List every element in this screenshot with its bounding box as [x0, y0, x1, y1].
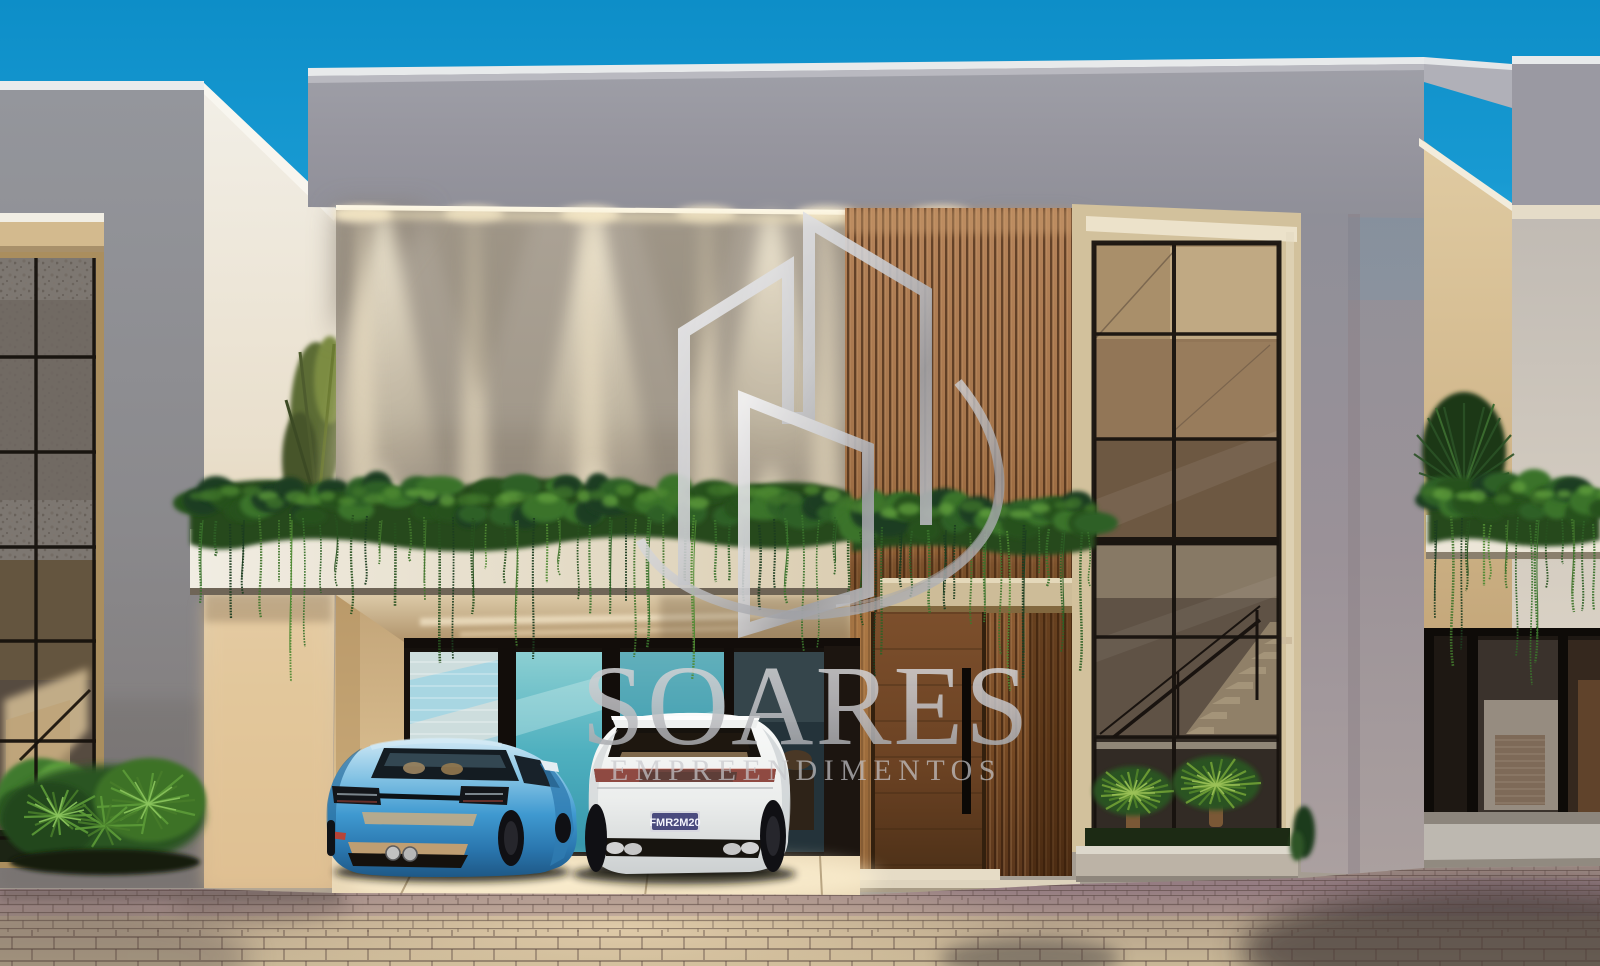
- svg-text:FMR2M20: FMR2M20: [649, 817, 700, 829]
- svg-text:SOARES: SOARES: [581, 642, 1030, 769]
- svg-text:EMPREENDIMENTOS: EMPREENDIMENTOS: [610, 754, 1002, 787]
